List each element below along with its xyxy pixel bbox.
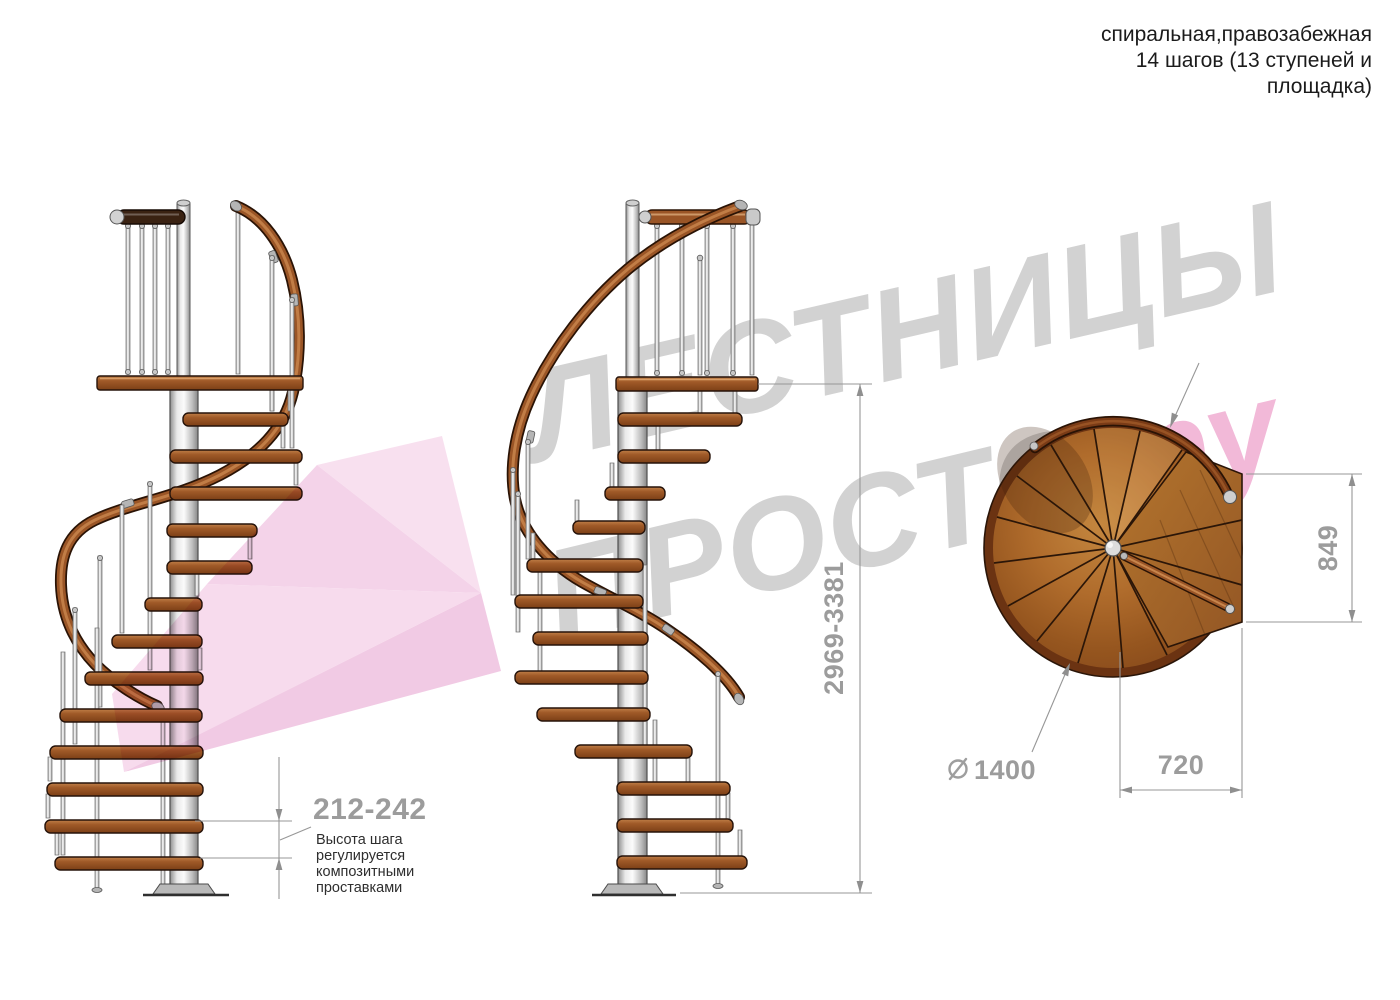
dim-total-height-label: 2969-3381 xyxy=(819,561,849,695)
upper-post xyxy=(177,203,190,380)
rail-knob xyxy=(1121,553,1128,560)
post-cap xyxy=(177,200,190,206)
drawing-canvas: ЛЕСТНИЦЫ ПРОСТО.ру xyxy=(0,0,1400,1000)
rail-fitting xyxy=(1030,442,1038,450)
note-line-2: регулируется xyxy=(316,848,405,864)
note-line-1: Высота шага xyxy=(316,832,403,848)
dim-diameter: 1400 xyxy=(950,663,1071,785)
note-line-4: проставками xyxy=(316,880,402,896)
dark-top-rail xyxy=(117,210,185,224)
rail-end-ball xyxy=(110,210,124,224)
staircase-technical-drawing: ЛЕСТНИЦЫ ПРОСТО.ру xyxy=(0,0,1400,1000)
base-flange xyxy=(601,884,663,894)
center-pole-plan xyxy=(1105,540,1121,556)
pole-highlight xyxy=(1107,542,1113,548)
post-cap xyxy=(626,200,639,206)
note-line-3: композитными xyxy=(316,864,414,880)
title-line-3: площадка) xyxy=(1101,74,1372,100)
rail-fitting xyxy=(639,211,651,223)
dim-step-height-label: 212-242 xyxy=(313,793,427,826)
base-flange xyxy=(153,884,215,894)
dim-landing-depth-label: 849 xyxy=(1313,525,1343,572)
rail-ferrule xyxy=(1226,605,1235,614)
title-block: спиральная,правозабежная 14 шагов (13 ст… xyxy=(1101,22,1372,100)
title-line-2: 14 шагов (13 ступеней и xyxy=(1101,48,1372,74)
rail-post-ball xyxy=(1224,491,1237,504)
dim-step-length-label: 720 xyxy=(1158,750,1205,780)
upper-post xyxy=(626,203,639,377)
title-line-1: спиральная,правозабежная xyxy=(1101,22,1372,48)
platform-railing xyxy=(110,210,240,375)
rail-end-cylinder xyxy=(746,209,760,225)
dim-diameter-label: 1400 xyxy=(974,755,1036,785)
dim-step-height: 212-242 Высота шага регулируется компози… xyxy=(195,757,427,899)
